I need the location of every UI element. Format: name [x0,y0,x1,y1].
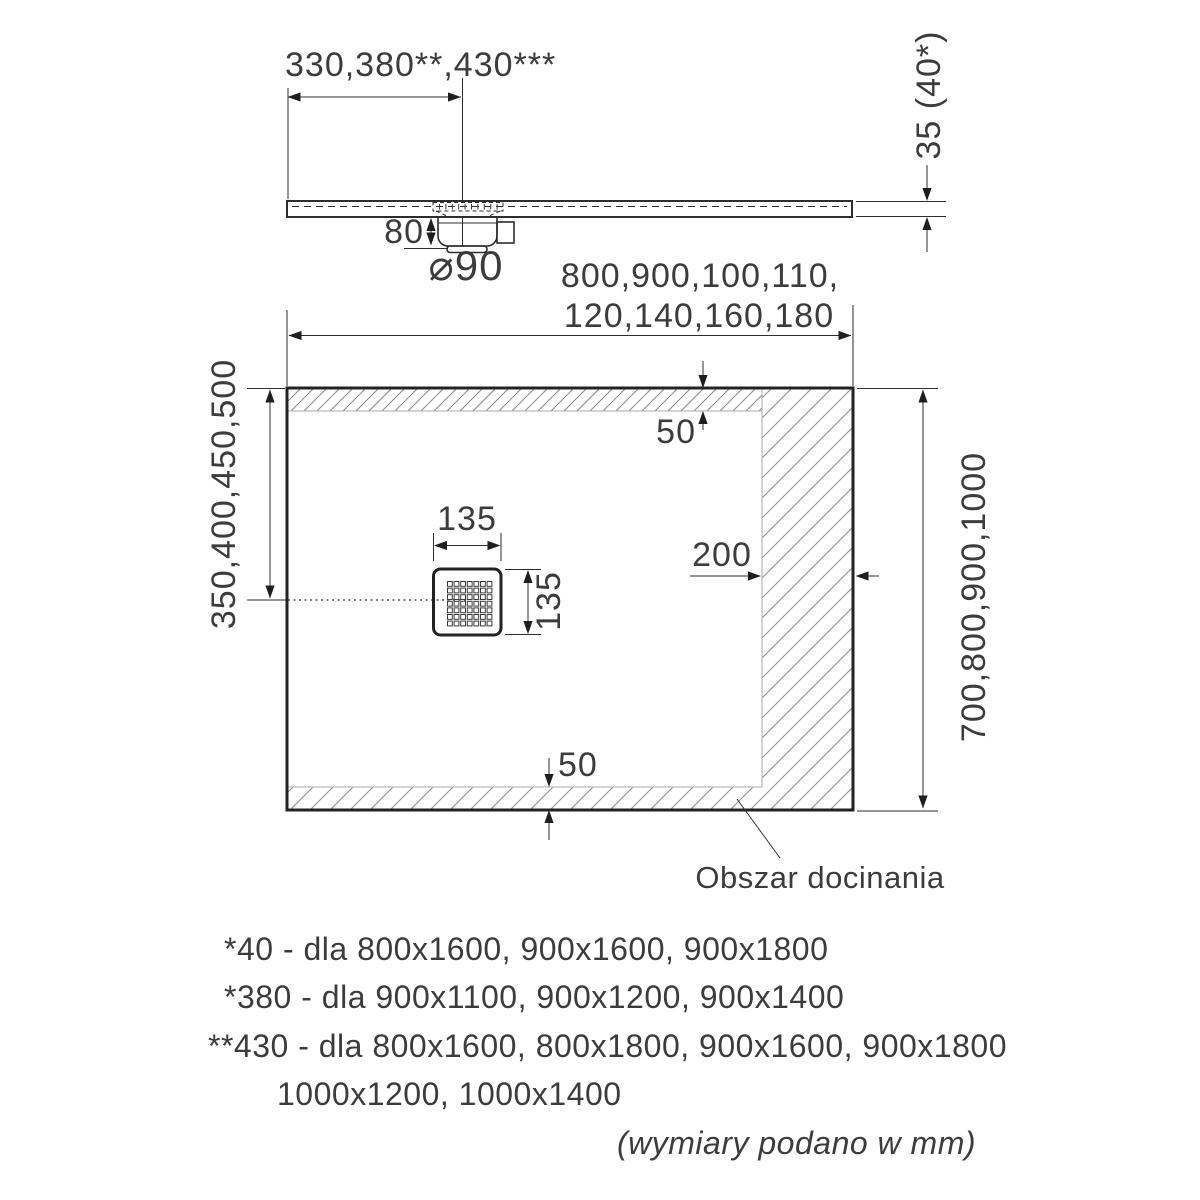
grate-width-label: 135 [437,500,497,538]
drain-hole [474,615,479,620]
drain-hole [474,621,479,626]
drain-hole [474,582,479,587]
drain-hole [487,595,492,600]
width-options-line2: 120,140,160,180 [564,297,834,335]
drain-outlet [497,222,514,243]
trap-depth-label: 80 [384,213,424,251]
units-footnote: (wymiary podano w mm) [617,1125,976,1161]
drain-hole [487,621,492,626]
drain-hole [474,608,479,613]
drain-hole [448,621,453,626]
drain-hole [467,588,472,593]
note-line-2: *380 - dla 900x1100, 900x1200, 900x1400 [224,979,844,1015]
dimension-arrow [488,541,501,550]
note-line-1: *40 - dla 800x1600, 900x1600, 900x1800 [224,931,828,967]
drain-hole [467,595,472,600]
dimension-arrow [698,411,707,424]
dimension-arrow [289,331,302,340]
side-margin-label: 200 [692,536,752,574]
drain-hole [481,588,486,593]
dimension-arrow [288,92,301,101]
drain-hole [454,595,459,600]
drain-hole [487,615,492,620]
drain-hole [454,608,459,613]
drain-hole [467,621,472,626]
shower-tray-technical-drawing: 330,380**,430*** 35 (40*) 80 ⌀90 800,900… [0,0,1200,1200]
drain-hole [448,588,453,593]
thickness-label: 35 (40*) [910,31,948,160]
drawing-canvas: 330,380**,430*** 35 (40*) 80 ⌀90 800,900… [0,0,1200,1200]
drain-hole [448,595,453,600]
length-options-label: 700,800,900,1000 [955,452,993,742]
drain-hole [448,601,453,606]
drain-hole [467,615,472,620]
dimension-arrow [856,571,869,580]
drain-grate-holes [448,582,492,626]
drain-hole [454,601,459,606]
dimension-arrow [434,541,447,550]
drain-hole [487,608,492,613]
drain-hole [454,582,459,587]
note-line-4: 1000x1200, 1000x1400 [277,1076,622,1112]
dimension-arrow [748,571,761,580]
drain-hole [448,615,453,620]
grate-height-label: 135 [530,571,568,631]
drain-hole [481,608,486,613]
drain-hole [467,582,472,587]
dimension-arrow [918,796,927,809]
dimension-arrow [265,586,274,599]
drain-hole [481,621,486,626]
drain-hole [474,588,479,593]
drain-hole [481,601,486,606]
drain-hole [487,601,492,606]
drain-hole [474,601,479,606]
side-view: 330,380**,430*** 35 (40*) 80 ⌀90 [285,31,948,289]
drain-hole [448,608,453,613]
trim-area-label: Obszar docinania [695,860,945,895]
dimension-arrow [698,375,707,388]
dimension-arrow [265,390,274,403]
plan-view: 800,900,100,110, 120,140,160,180 350,400… [205,257,993,895]
drain-hole [467,601,472,606]
notes-block: *40 - dla 800x1600, 900x1600, 900x1800 *… [208,931,1007,1161]
dimension-arrow [839,331,852,340]
drain-hole [481,595,486,600]
drain-hole [487,582,492,587]
dimension-arrow [544,810,553,823]
top-margin-label: 50 [656,413,696,451]
drain-hole [448,582,453,587]
dimension-arrow [918,390,927,403]
dimension-arrow [922,217,931,230]
note-line-3: **430 - dla 800x1600, 800x1800, 900x1600… [208,1028,1007,1064]
drain-hole [461,608,466,613]
drain-hole [461,601,466,606]
drain-hole [461,615,466,620]
trim-area-right [762,390,852,809]
drain-hole [481,615,486,620]
drain-hole [461,595,466,600]
dimension-arrow [922,188,931,201]
dimension-arrow [426,218,435,231]
drain-hole [454,621,459,626]
tray-profile [287,201,852,217]
drain-hole [481,582,486,587]
drain-hole [454,615,459,620]
width-options-line1: 800,900,100,110, [561,257,839,295]
bottom-margin-label: 50 [558,746,598,784]
drain-hole [487,588,492,593]
dimension-arrow [448,92,461,101]
drain-hole [454,588,459,593]
drain-diameter-label: ⌀90 [428,242,503,289]
trim-area-bottom [289,787,763,809]
drain-offset-label: 330,380**,430*** [285,46,556,84]
drain-hole [461,621,466,626]
drain-hole [467,608,472,613]
drain-hole [461,582,466,587]
trim-area-top [289,390,763,412]
drain-hole [474,595,479,600]
drain-center-offset-label: 350,400,450,500 [205,359,243,629]
dimension-arrow [544,774,553,787]
drain-hole [461,588,466,593]
